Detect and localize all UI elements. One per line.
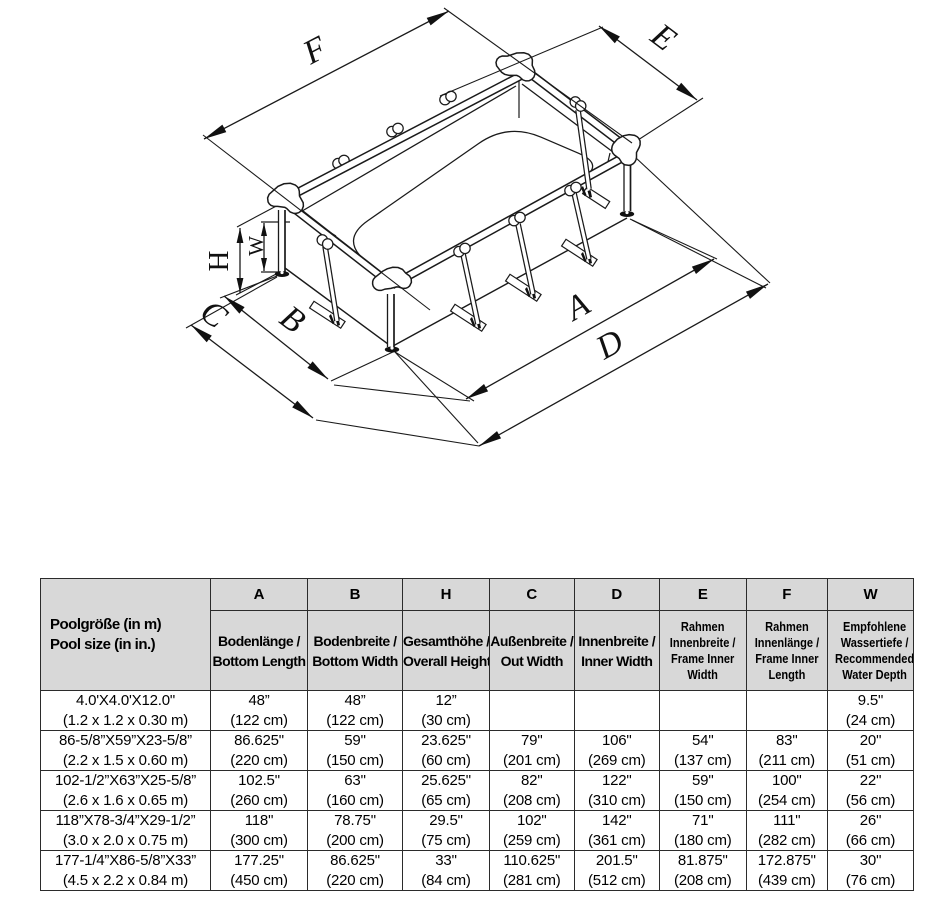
svg-text:F: F: [297, 29, 334, 72]
svg-text:E: E: [643, 16, 683, 59]
svg-text:H: H: [203, 250, 235, 271]
svg-text:A: A: [558, 285, 596, 329]
svg-text:W: W: [244, 236, 268, 256]
svg-text:D: D: [589, 322, 630, 367]
svg-text:B: B: [273, 299, 312, 341]
